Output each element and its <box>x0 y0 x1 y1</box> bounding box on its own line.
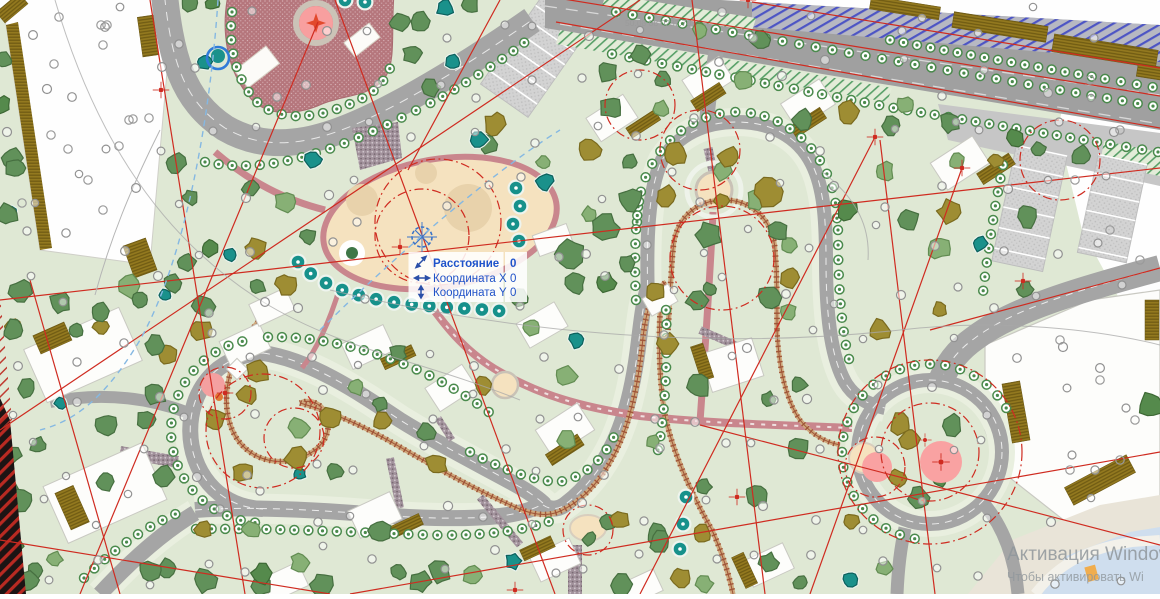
svg-text:Расстояние: Расстояние <box>433 258 499 270</box>
svg-text:0: 0 <box>510 273 516 285</box>
svg-text:Чтобы активировать Wi: Чтобы активировать Wi <box>1007 570 1144 584</box>
svg-text:Координата X: Координата X <box>433 273 507 285</box>
svg-text:Активация Windows: Активация Windows <box>1007 544 1160 565</box>
svg-text:0: 0 <box>510 258 516 270</box>
svg-text:Координата Y: Координата Y <box>433 287 507 299</box>
svg-text:0: 0 <box>510 287 516 299</box>
svg-text:50.08 08 0237.70: 50.08 08 0237.70 <box>625 18 691 28</box>
